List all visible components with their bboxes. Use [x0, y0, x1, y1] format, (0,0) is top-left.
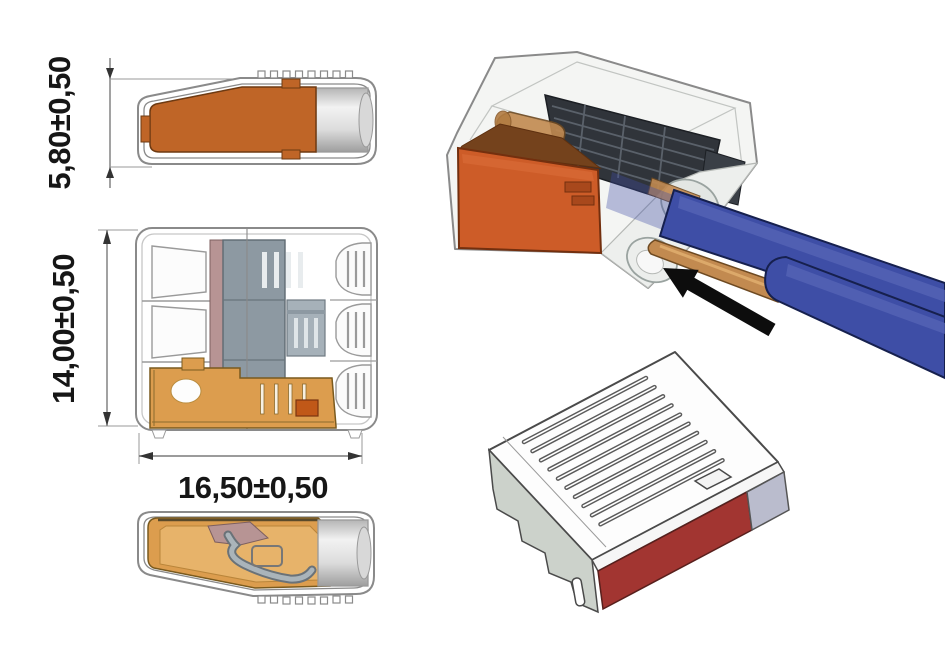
view-3d-closed: [489, 352, 789, 612]
test-slot: [296, 400, 318, 416]
cage-opening: [171, 379, 201, 403]
lever-left-tab: [141, 116, 150, 142]
drawing-canvas: [0, 0, 945, 668]
view-side-top: [138, 71, 376, 164]
lever-latch-step: [565, 182, 591, 192]
release-pusher: [210, 240, 223, 382]
dim-arrowhead: [348, 452, 362, 460]
view-side-cutaway: [138, 512, 374, 604]
dim-arrowhead: [103, 412, 111, 426]
entry-mouth: [359, 93, 373, 147]
wire-entry-funnels: [330, 243, 377, 417]
connector-technical-drawing: 5,80±0,50 14,00±0,50 16,50±0,50: [0, 0, 945, 668]
view-3d-insertion: [447, 52, 945, 378]
strain-relief-teeth: [258, 71, 353, 78]
entry-mouth: [357, 527, 371, 579]
dim-arrowhead: [139, 452, 153, 460]
lever-bottom-tab: [282, 150, 300, 159]
dim-label-front-width: 16,50±0,50: [143, 470, 363, 506]
lever-latch-step: [572, 196, 594, 205]
lever-top-tab: [282, 79, 300, 88]
lower-wire: [648, 240, 945, 378]
clamp-blocks: [287, 300, 325, 356]
dim-label-front-height: 14,00±0,50: [46, 237, 82, 421]
dimension-front-width: [139, 433, 362, 464]
dim-label-side-height: 5,80±0,50: [42, 41, 78, 205]
bottom-feet: [152, 430, 362, 438]
strain-relief-teeth: [258, 596, 353, 604]
view-front: [136, 228, 377, 438]
cage-tongue: [182, 358, 204, 370]
dim-arrowhead: [103, 230, 111, 244]
dimension-front-height: [98, 230, 138, 426]
dim-arrowhead: [106, 167, 114, 178]
dim-arrowhead: [106, 68, 114, 79]
